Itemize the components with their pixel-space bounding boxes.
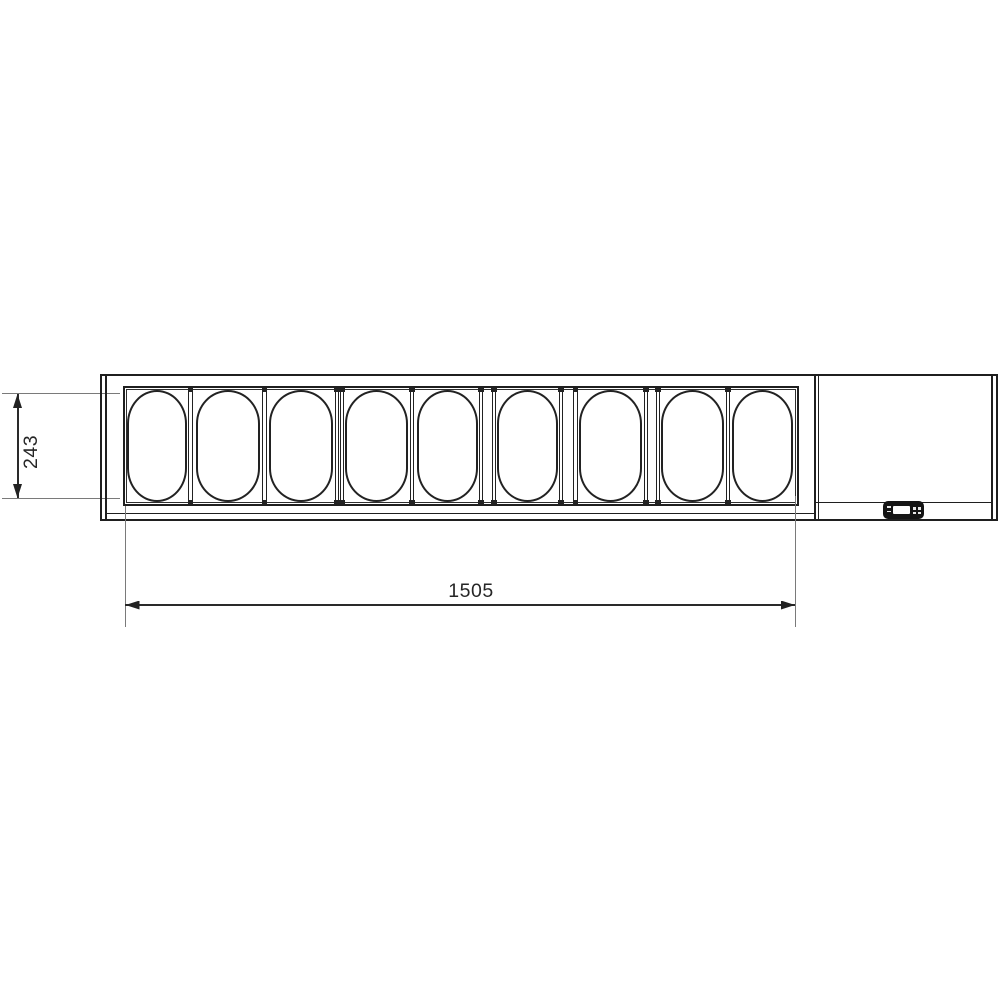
controller-button-left2 — [887, 511, 891, 513]
gastronorm-pan-3 — [269, 390, 333, 502]
controller-display — [893, 506, 910, 514]
gastronorm-pan-4 — [345, 390, 408, 502]
pan-divider — [340, 388, 345, 504]
pan-divider — [656, 388, 661, 504]
cabinet-bottom-edge — [100, 519, 997, 521]
pan-divider — [410, 388, 415, 504]
cabinet-right-edge — [991, 374, 998, 521]
width-extension-line-left — [125, 506, 126, 627]
pan-divider — [644, 388, 649, 504]
pan-divider — [573, 388, 578, 504]
pan-divider — [262, 388, 267, 504]
pan-divider — [335, 388, 340, 504]
controller-digit3 — [913, 512, 916, 514]
controller-digit4 — [918, 512, 921, 514]
depth-dimension-line — [17, 394, 19, 498]
controller-button-left — [887, 506, 891, 508]
pan-divider — [492, 388, 497, 504]
pan-divider — [479, 388, 484, 504]
depth-dim-arrow-up-icon — [13, 394, 22, 408]
pan-divider — [559, 388, 564, 504]
cabinet-left-edge — [100, 374, 107, 521]
pan-divider — [726, 388, 731, 504]
gastronorm-pan-8 — [661, 390, 724, 502]
gastronorm-pan-6 — [497, 390, 558, 502]
gastronorm-pan-9 — [732, 390, 793, 502]
controller-digit2 — [918, 507, 921, 511]
gastronorm-pan-1 — [127, 390, 187, 502]
controller-unit — [883, 501, 924, 519]
gastronorm-pan-2 — [196, 390, 260, 502]
width-dimension-label: 1505 — [448, 580, 493, 602]
cabinet-top-edge — [100, 374, 997, 376]
gastronorm-pan-5 — [417, 390, 478, 502]
width-extension-line-right — [795, 496, 796, 627]
technical-drawing-canvas: 243 1505 — [0, 0, 1000, 1000]
depth-dimension-label: 243 — [20, 435, 43, 469]
pan-divider — [188, 388, 193, 504]
depth-dim-arrow-down-icon — [13, 484, 22, 498]
width-dimension-line — [125, 604, 795, 606]
machine-compartment-left-wall — [814, 375, 819, 520]
gastronorm-pan-7 — [579, 390, 642, 502]
front-edge-line — [106, 513, 814, 515]
controller-digit — [913, 507, 916, 511]
